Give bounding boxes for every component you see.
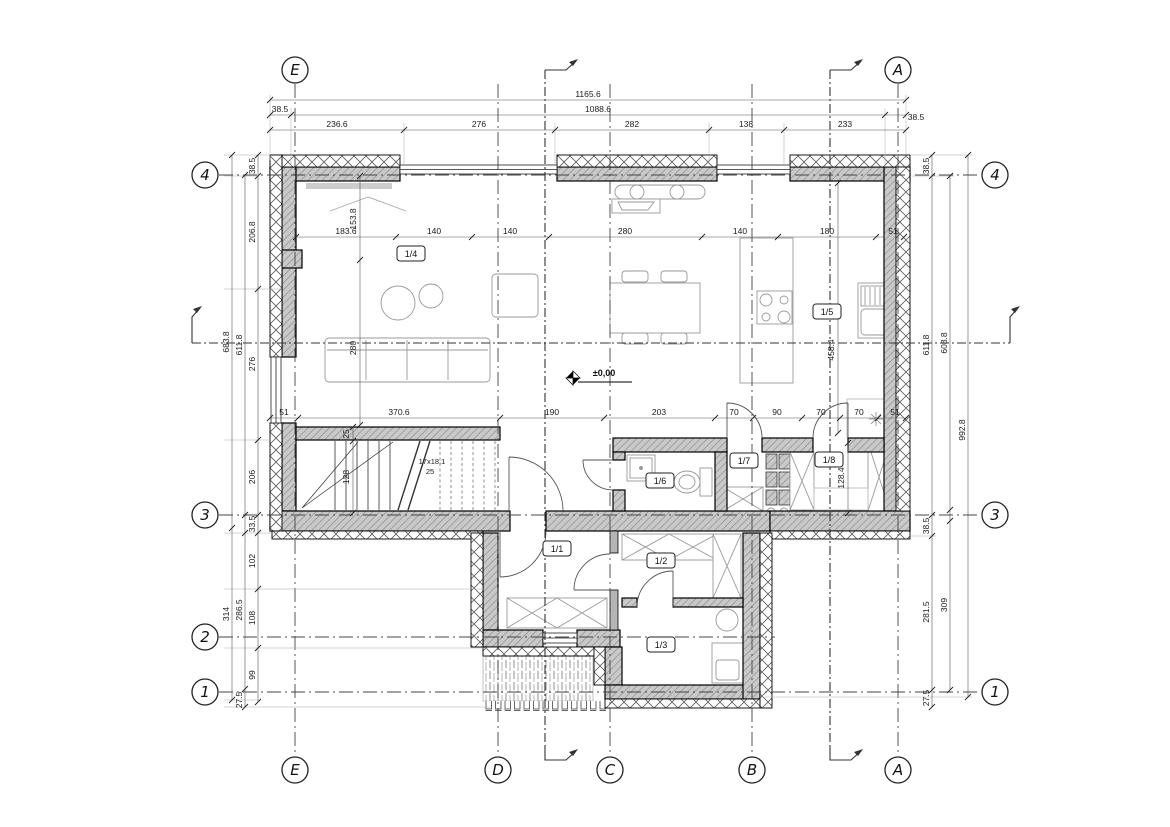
grid-bubble-E-top: E (282, 57, 308, 83)
chimney-block (282, 250, 302, 268)
insulation-strip (557, 155, 717, 167)
grid-bubble-D-bottom: D (485, 757, 511, 783)
room-label-1-8: 1/8 (815, 452, 843, 467)
dim-label: 38.5 (921, 157, 931, 174)
room-label-text: 1/8 (823, 455, 836, 465)
room-label-text: 1/2 (655, 556, 668, 566)
insulation-strip (272, 531, 483, 539)
insulation-strip (790, 155, 910, 167)
grid-bubble-C-bottom: C (597, 757, 623, 783)
dim-label: 108 (247, 611, 257, 625)
dim-label: 140 (427, 226, 441, 236)
dim-label: 190 (545, 407, 559, 417)
dim-label: 38.5 (908, 112, 925, 122)
insulation-strip (471, 533, 483, 647)
grid-label: E (290, 761, 300, 779)
partition (610, 590, 618, 630)
grid-bubble-A-top: A (885, 57, 911, 83)
stair-note: 25 (426, 467, 434, 476)
wall (613, 490, 625, 511)
dim-label: 70 (816, 407, 826, 417)
dim-label: 203 (652, 407, 666, 417)
grid-label: B (747, 761, 757, 779)
hood-knob (630, 185, 644, 199)
dim-label: 51 (888, 226, 898, 236)
wall (483, 630, 543, 647)
insulation-strip (896, 167, 910, 511)
dim-label: 51 (890, 407, 900, 417)
grid-bubble-4-right: 4 (982, 162, 1008, 188)
dim-label: 140 (503, 226, 517, 236)
dim-label: 276 (472, 119, 486, 129)
dim-label: 25 (341, 429, 351, 439)
dim-label: 281.5 (921, 601, 931, 623)
kitchen-counter-top (612, 199, 660, 213)
dim-label: 276 (247, 357, 257, 371)
room-label-1-1: 1/1 (543, 541, 571, 556)
coffee-table (381, 286, 415, 320)
dim-label: 1165.6 (575, 89, 601, 99)
armchair (492, 274, 538, 317)
wall (605, 647, 622, 685)
grid-bubble-4-left: 4 (192, 162, 218, 188)
grid-bubble-1-left: 1 (192, 679, 218, 705)
dining-chair (622, 271, 648, 282)
floor-plan-page: 1165.6 38.5 1088.6 38.5 236.6 276 282 13… (0, 0, 1170, 827)
dim-label: 206.8 (247, 221, 257, 243)
shower-drain (640, 467, 643, 470)
dim-label: 38.5 (921, 517, 931, 534)
floor-plan-canvas: 1165.6 38.5 1088.6 38.5 236.6 276 282 13… (0, 0, 1170, 827)
tv-console (306, 183, 392, 189)
grid-label: 3 (990, 506, 1000, 524)
dim-label: 206 (247, 470, 257, 484)
dim-label: 33.5 (247, 515, 257, 532)
wall (743, 533, 760, 699)
room-label-1-2: 1/2 (647, 553, 675, 568)
grid-bubble-2-left: 2 (192, 624, 218, 650)
dim-label: 1088.6 (585, 104, 611, 114)
grid-label: C (605, 761, 616, 779)
dim-label: 38.5 (247, 157, 257, 174)
grid-bubble-B-bottom: B (739, 757, 765, 783)
dim-label: 70 (854, 407, 864, 417)
room-label-1-5: 1/5 (813, 304, 841, 319)
dim-label: 128 (341, 470, 351, 484)
dim-label: 102 (247, 554, 257, 568)
level-label: ±0,00 (593, 368, 615, 378)
dining-chair (661, 271, 687, 282)
grid-label: 1 (200, 683, 210, 701)
dim-label: 180 (820, 226, 834, 236)
dim-label: 51 (279, 407, 289, 417)
wall (483, 533, 498, 630)
dim-label: 38.5 (272, 104, 289, 114)
grid-label: 4 (200, 166, 210, 184)
wall (762, 438, 813, 452)
grid-label: A (892, 61, 903, 79)
stair-note: 17x18.1 (419, 457, 446, 466)
dim-label: 309 (939, 598, 949, 612)
dim-label: 138 (739, 119, 753, 129)
wall (848, 438, 884, 452)
burner (762, 313, 770, 321)
wall (622, 598, 637, 607)
insulation-strip (594, 647, 605, 685)
dim-label: 233 (838, 119, 852, 129)
dim-label: 370.6 (388, 407, 410, 417)
grid-label: E (290, 61, 300, 79)
dim-label: 608.8 (939, 332, 949, 354)
grid-bubble-3-right: 3 (982, 502, 1008, 528)
room-label-1-4: 1/4 (397, 246, 425, 261)
room-label-text: 1/7 (738, 456, 751, 466)
wall (557, 167, 717, 181)
partition (610, 531, 618, 553)
dim-label: 128.4 (836, 467, 846, 489)
dim-label: 90 (772, 407, 782, 417)
dim-label: 153.8 (348, 208, 358, 230)
burner (778, 311, 790, 323)
room-label-1-7: 1/7 (730, 453, 758, 468)
dim-label: 282 (625, 119, 639, 129)
dining-chair (622, 333, 648, 344)
grid-bubble-E-bottom: E (282, 757, 308, 783)
burner (760, 294, 772, 306)
insulation-strip (483, 647, 595, 656)
range-hood (615, 185, 705, 199)
grid-label: A (892, 761, 903, 779)
insulation-strip (770, 531, 910, 539)
porch-edge (485, 701, 607, 711)
dim-label: 140 (733, 226, 747, 236)
dim-label: 280 (348, 341, 358, 355)
dim-label: 314 (221, 607, 231, 621)
toilet-bowl-inner (679, 475, 695, 489)
insulation-strip (760, 533, 772, 708)
wall (546, 511, 770, 531)
dim-label: 70 (729, 407, 739, 417)
grid-bubble-A-bottom: A (885, 757, 911, 783)
vent-fan-icon (869, 412, 883, 426)
boiler (716, 609, 738, 631)
grid-bubble-3-left: 3 (192, 502, 218, 528)
insulation-strip (605, 699, 760, 708)
dim-label: 683.8 (221, 331, 231, 353)
wall (715, 452, 727, 511)
dim-label: 611.8 (921, 334, 931, 355)
insulation-strip (270, 155, 282, 357)
side-table (419, 284, 443, 308)
hood-knob (670, 185, 684, 199)
wall (296, 427, 500, 440)
dining-table (610, 283, 700, 333)
grid-label: 1 (990, 683, 1000, 701)
room-label-1-3: 1/3 (647, 637, 675, 652)
dim-label: 992.8 (957, 419, 967, 441)
dim-label: 27.5 (234, 691, 244, 708)
grid-label: 4 (990, 166, 1000, 184)
wall (673, 598, 743, 607)
room-label-text: 1/6 (654, 476, 667, 486)
dim-label: 27.5 (921, 689, 931, 706)
toilet-tank (700, 468, 712, 496)
room-label-1-6: 1/6 (646, 473, 674, 488)
wall (613, 438, 727, 452)
grid-label: 3 (200, 506, 210, 524)
dim-label: 280 (618, 226, 632, 236)
grid-bubble-1-right: 1 (982, 679, 1008, 705)
dining-chair (661, 333, 687, 344)
room-label-text: 1/5 (821, 307, 834, 317)
grid-label: D (492, 761, 504, 779)
wall (270, 511, 510, 531)
washing-machine-door (716, 660, 739, 680)
room-label-text: 1/4 (405, 249, 418, 259)
burner (780, 296, 788, 304)
dim-label: 286.5 (234, 599, 244, 621)
dim-label: 458.4 (826, 339, 836, 361)
dim-label: 99 (247, 670, 257, 680)
wall (577, 630, 620, 647)
wall (770, 511, 910, 531)
room-label-text: 1/3 (655, 640, 668, 650)
porch-steps (483, 656, 593, 701)
room-label-text: 1/1 (551, 544, 564, 554)
insulation-strip (270, 155, 400, 167)
dim-label: 611.8 (234, 334, 244, 355)
wall (613, 452, 625, 460)
dim-label: 236.6 (326, 119, 348, 129)
wall (282, 423, 296, 511)
grid-label: 2 (200, 628, 210, 646)
